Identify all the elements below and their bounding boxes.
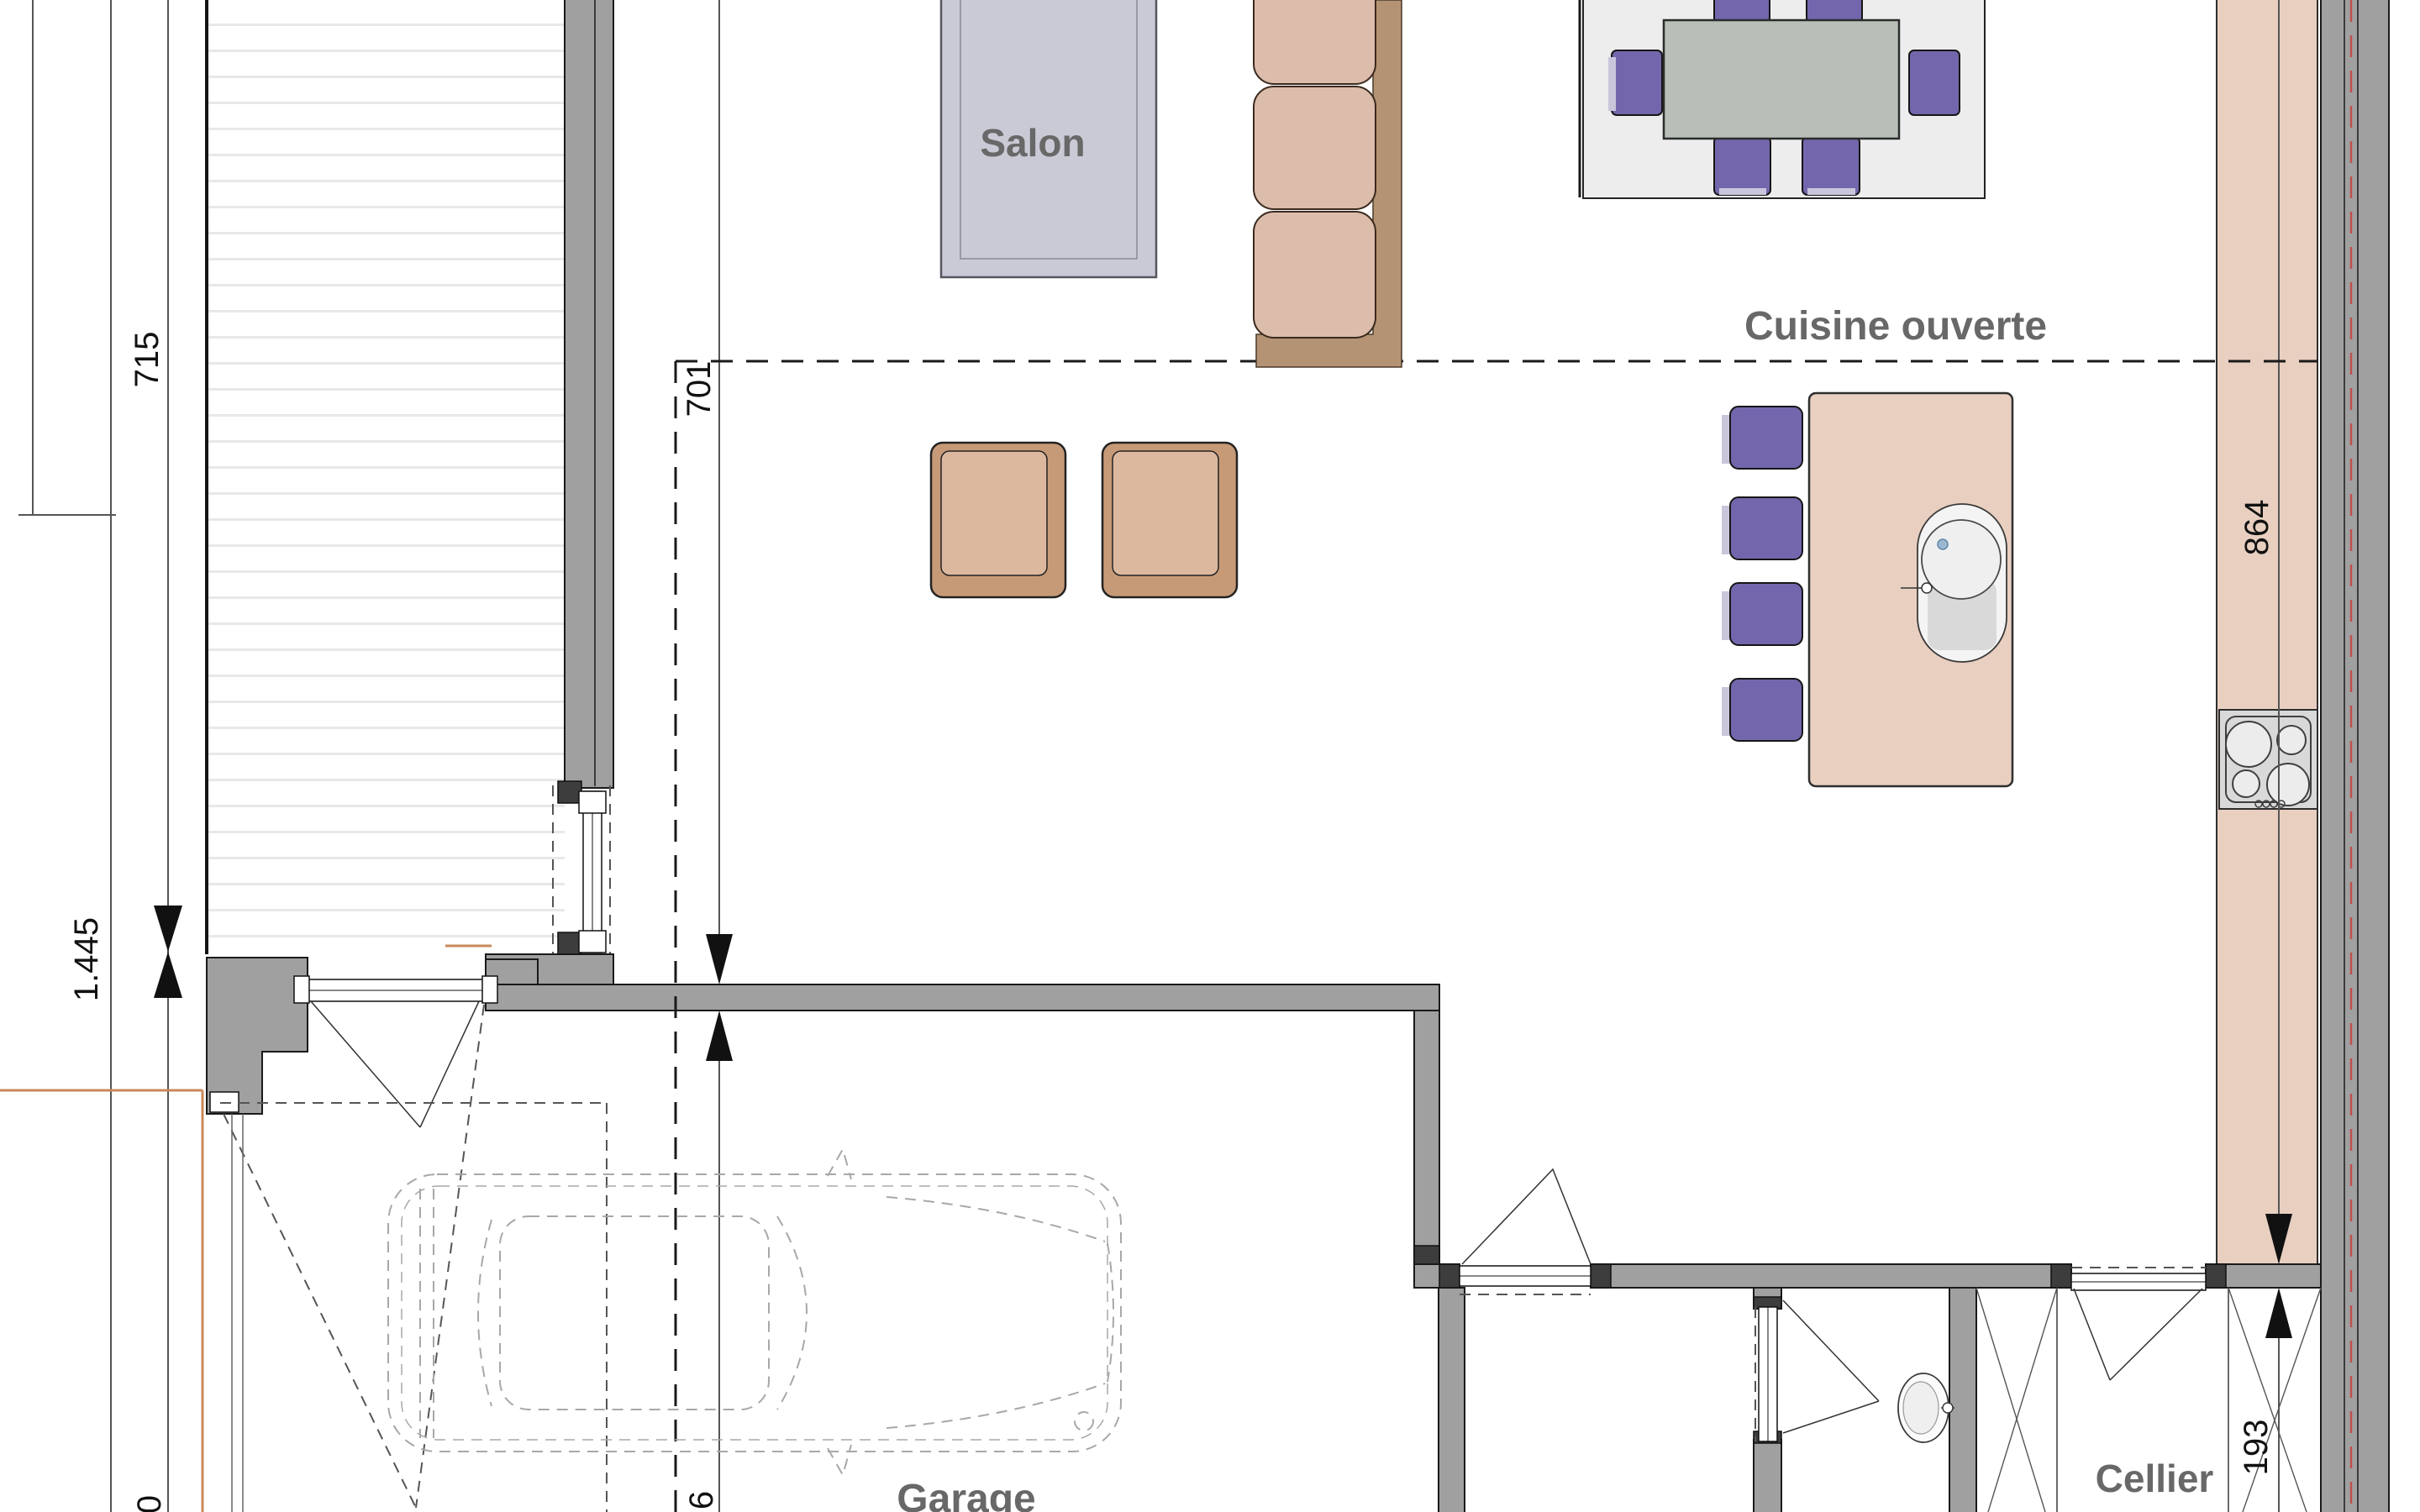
dining-set — [1583, 0, 1985, 198]
bar-stools — [1722, 407, 1802, 741]
room-label-garage: Garage — [897, 1477, 1035, 1512]
wc-toilet — [1898, 1373, 1954, 1442]
dining-chair — [1714, 137, 1770, 195]
dimension-label-701: 701 — [681, 361, 718, 417]
garage-door-track-dashed — [220, 1103, 607, 1512]
burner-icon — [2277, 726, 2306, 754]
dining-table — [1664, 20, 1899, 139]
dimension-label-cut-garage: 6 — [683, 1491, 720, 1509]
bar-stool — [1730, 679, 1802, 741]
burner-icon — [2226, 722, 2271, 767]
bar-stool — [1730, 407, 1802, 469]
wall-partition-hall — [1439, 1288, 1465, 1512]
wall-garage-top — [486, 984, 1439, 1011]
faucet-icon — [1922, 583, 1932, 593]
sliding-door — [553, 785, 610, 953]
wall-right-exterior — [2321, 0, 2389, 1512]
room-label-cuisine: Cuisine ouverte — [1744, 304, 2047, 349]
dimension-label-cut-left: 0 — [131, 1495, 168, 1512]
door-garage-to-living — [1460, 1169, 1591, 1294]
door-cellier — [2071, 1268, 2206, 1380]
wall-lower-horizontal — [1591, 1264, 2071, 1288]
floor-plan: Salon Cuisine ouverte Garage Cellier 715… — [0, 0, 2420, 1512]
closet-left — [1976, 1288, 2057, 1512]
floor-plan-canvas: Salon Cuisine ouverte Garage Cellier 715… — [0, 0, 2420, 1512]
dining-chair — [1909, 50, 1960, 115]
wall-partition-cellier — [1949, 1288, 1976, 1512]
dimension-label-864: 864 — [2238, 500, 2275, 556]
room-label-cellier: Cellier — [2096, 1457, 2214, 1500]
armchair — [931, 443, 1065, 597]
wall-corner-garage-left — [207, 958, 308, 1114]
garage-door — [210, 976, 607, 1512]
sofa — [1254, 0, 1402, 367]
dimension-label-715: 715 — [129, 332, 166, 388]
armchair — [1102, 443, 1237, 597]
bar-stool — [1730, 497, 1802, 559]
drain-icon — [1938, 539, 1948, 549]
kitchen-counter — [2217, 0, 2317, 1265]
wall-partition-wc — [1754, 1440, 1781, 1512]
dimension-label-193: 193 — [2238, 1420, 2275, 1476]
room-label-salon: Salon — [980, 121, 1085, 165]
dimension-label-1445: 1.445 — [68, 917, 105, 1001]
burner-icon — [2267, 764, 2309, 806]
car — [388, 1149, 1121, 1475]
dining-chair — [1612, 50, 1662, 115]
bar-stool — [1730, 583, 1802, 645]
wall-left-exterior — [565, 0, 613, 788]
dining-chair — [1802, 137, 1860, 195]
burner-icon — [2233, 770, 2260, 797]
car-mirror-icon — [828, 1445, 851, 1475]
wall-garage-right — [1414, 1011, 1439, 1264]
cooktop — [2219, 710, 2317, 809]
door-wc — [1755, 1300, 1879, 1441]
